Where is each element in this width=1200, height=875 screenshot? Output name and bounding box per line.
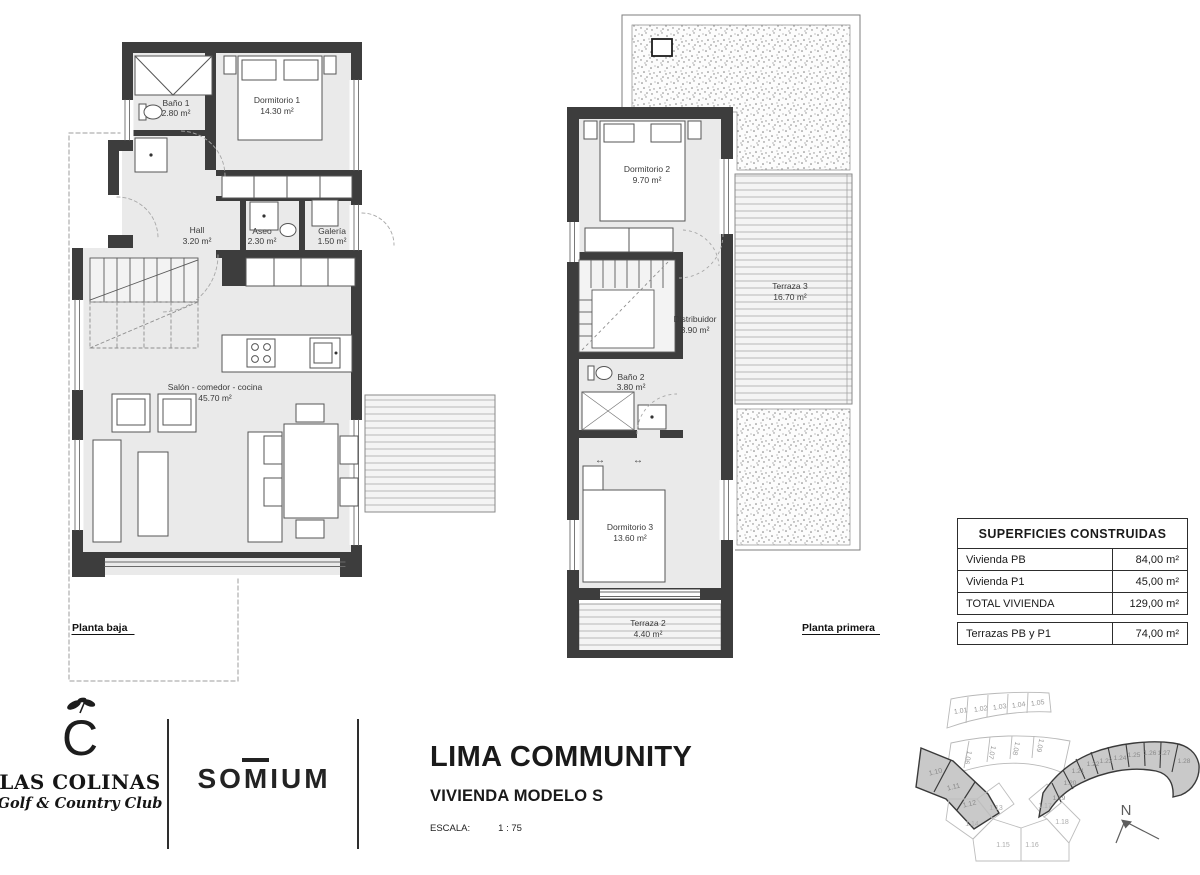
las-colinas-tagline: Golf & Country Club <box>0 795 170 812</box>
divider-line <box>357 719 359 849</box>
las-colinas-logo: C LAS COLINAS Golf & Country Club <box>0 697 170 812</box>
room-label: Dormitorio 3 <box>607 522 654 532</box>
first-floor-stairs <box>579 260 675 352</box>
divider-line <box>167 719 169 849</box>
lot-label: 1.16 <box>1025 842 1039 849</box>
room-label: Galería <box>318 226 346 236</box>
room-label: Dormitorio 1 <box>254 95 301 105</box>
lot-label: 1.28 <box>1178 758 1191 765</box>
lot-label: 1.26 <box>1144 750 1157 757</box>
areas-table-terrace-box: Terrazas PB y P1 74,00 m² <box>957 622 1188 645</box>
lot-label: 1.23 <box>1100 758 1113 765</box>
room-area: 3.80 m² <box>617 382 646 392</box>
areas-table-body: Vivienda PB 84,00 m² Vivienda P1 45,00 m… <box>957 549 1188 615</box>
areas-table: SUPERFICIES CONSTRUIDAS Vivienda PB 84,0… <box>957 518 1188 645</box>
somium-logo: SOMIUM <box>170 757 358 795</box>
room-label: Terraza 2 <box>630 618 666 628</box>
lot-label: 1.17 <box>1038 803 1052 810</box>
terrace2-deck <box>579 604 721 652</box>
ground-floor-plan: Baño 1 2.80 m² Dormitorio 1 14.30 m² Hal… <box>69 42 495 681</box>
first-floor-plan: ↔↔ Dormitorio 2 9.70 m² Terraza 3 16.70 … <box>566 15 881 658</box>
lot-label: 1.05 <box>1031 699 1046 708</box>
row-value: 45,00 m² <box>1112 571 1187 592</box>
lot-label: 1.21 <box>1072 768 1085 775</box>
row-label: Vivienda PB <box>958 554 1112 566</box>
lot-label: 1.15 <box>996 842 1010 849</box>
somium-wordmark: SOMIUM <box>170 763 358 795</box>
plan-sheet: { "title_block": { "title": "LIMA COMMUN… <box>0 0 1200 875</box>
lot-label: 1.13 <box>989 805 1003 812</box>
room-label: Hall <box>190 225 205 235</box>
room-area: 3.20 m² <box>183 236 212 246</box>
lot-label: 1.03 <box>993 703 1008 712</box>
scale-value: 1 : 75 <box>498 823 522 834</box>
room-area: 13.60 m² <box>613 533 647 543</box>
site-plan: 1.01 1.02 1.03 1.04 1.05 1.06 1.07 1.08 … <box>916 692 1199 861</box>
room-area: 1.50 m² <box>318 236 347 246</box>
room-area: 3.90 m² <box>681 325 710 335</box>
row-label: TOTAL VIVIENDA <box>958 598 1112 610</box>
scale-line: ESCALA: 1 : 75 <box>430 823 850 834</box>
room-label: Aseo <box>252 226 272 236</box>
table-row: Vivienda PB 84,00 m² <box>958 549 1187 570</box>
lot-label: 1.07 <box>986 745 996 760</box>
lot-label: 1.02 <box>974 705 989 714</box>
lot-label: 1.24 <box>1114 755 1127 762</box>
model-subtitle: VIVIENDA MODELO S <box>430 787 850 806</box>
lot-label: 1.22 <box>1087 761 1100 768</box>
lot-label: 1.19 <box>1053 795 1066 802</box>
room-area: 45.70 m² <box>198 393 232 403</box>
project-title: LIMA COMMUNITY <box>430 741 850 774</box>
row-value: 129,00 m² <box>1112 593 1187 614</box>
room-label: Distribuidor <box>674 314 717 324</box>
room-label: Salón - comedor - cocina <box>168 382 263 392</box>
lot-label: 1.01 <box>954 707 969 716</box>
las-colinas-monogram-icon: C <box>0 697 170 763</box>
somium-macron <box>242 758 269 762</box>
row-label: Terrazas PB y P1 <box>958 628 1112 640</box>
table-row: TOTAL VIVIENDA 129,00 m² <box>958 592 1187 614</box>
plan-label-planta-baja: Planta baja <box>72 622 128 634</box>
room-area: 14.30 m² <box>260 106 294 116</box>
room-area: 4.40 m² <box>634 629 663 639</box>
lot-label: 1.04 <box>1012 701 1027 710</box>
table-row: Vivienda P1 45,00 m² <box>958 570 1187 592</box>
lot-label: 1.27 <box>1158 750 1171 757</box>
row-value: 84,00 m² <box>1112 549 1187 570</box>
gravel-area-bottom <box>737 409 850 545</box>
svg-text:↔: ↔ <box>595 455 605 466</box>
lot-label: 1.20 <box>1064 780 1077 787</box>
areas-table-header: SUPERFICIES CONSTRUIDAS <box>957 518 1188 549</box>
room-label: Dormitorio 2 <box>624 164 671 174</box>
north-arrow-icon: N <box>1116 802 1159 843</box>
monogram-letter: C <box>62 710 98 763</box>
lot-label: 1.14 <box>965 821 979 828</box>
lot-label: 1.06 <box>962 750 972 765</box>
room-area: 9.70 m² <box>633 175 662 185</box>
table-row: Terrazas PB y P1 74,00 m² <box>958 623 1187 644</box>
lot-label: 1.08 <box>1010 741 1020 756</box>
room-label: Terraza 3 <box>772 281 808 291</box>
room-label: Baño 2 <box>618 372 645 382</box>
svg-text:↔: ↔ <box>633 455 643 466</box>
row-value: 74,00 m² <box>1112 623 1187 644</box>
room-label: Baño 1 <box>163 98 190 108</box>
room-area: 2.30 m² <box>248 236 277 246</box>
room-area: 2.80 m² <box>162 108 191 118</box>
las-colinas-name: LAS COLINAS <box>0 770 170 794</box>
plan-label-planta-primera: Planta primera <box>802 622 875 634</box>
skylight <box>652 39 672 56</box>
room-area: 16.70 m² <box>773 292 807 302</box>
north-label: N <box>1121 802 1132 819</box>
lot-label: 1.18 <box>1055 819 1069 826</box>
lot-label: 1.25 <box>1128 752 1141 759</box>
row-label: Vivienda P1 <box>958 576 1112 588</box>
title-block: LIMA COMMUNITY VIVIENDA MODELO S ESCALA:… <box>430 741 850 834</box>
ground-deck <box>365 395 495 512</box>
lot-label: 1.09 <box>1034 738 1044 753</box>
scale-label: ESCALA: <box>430 823 470 834</box>
